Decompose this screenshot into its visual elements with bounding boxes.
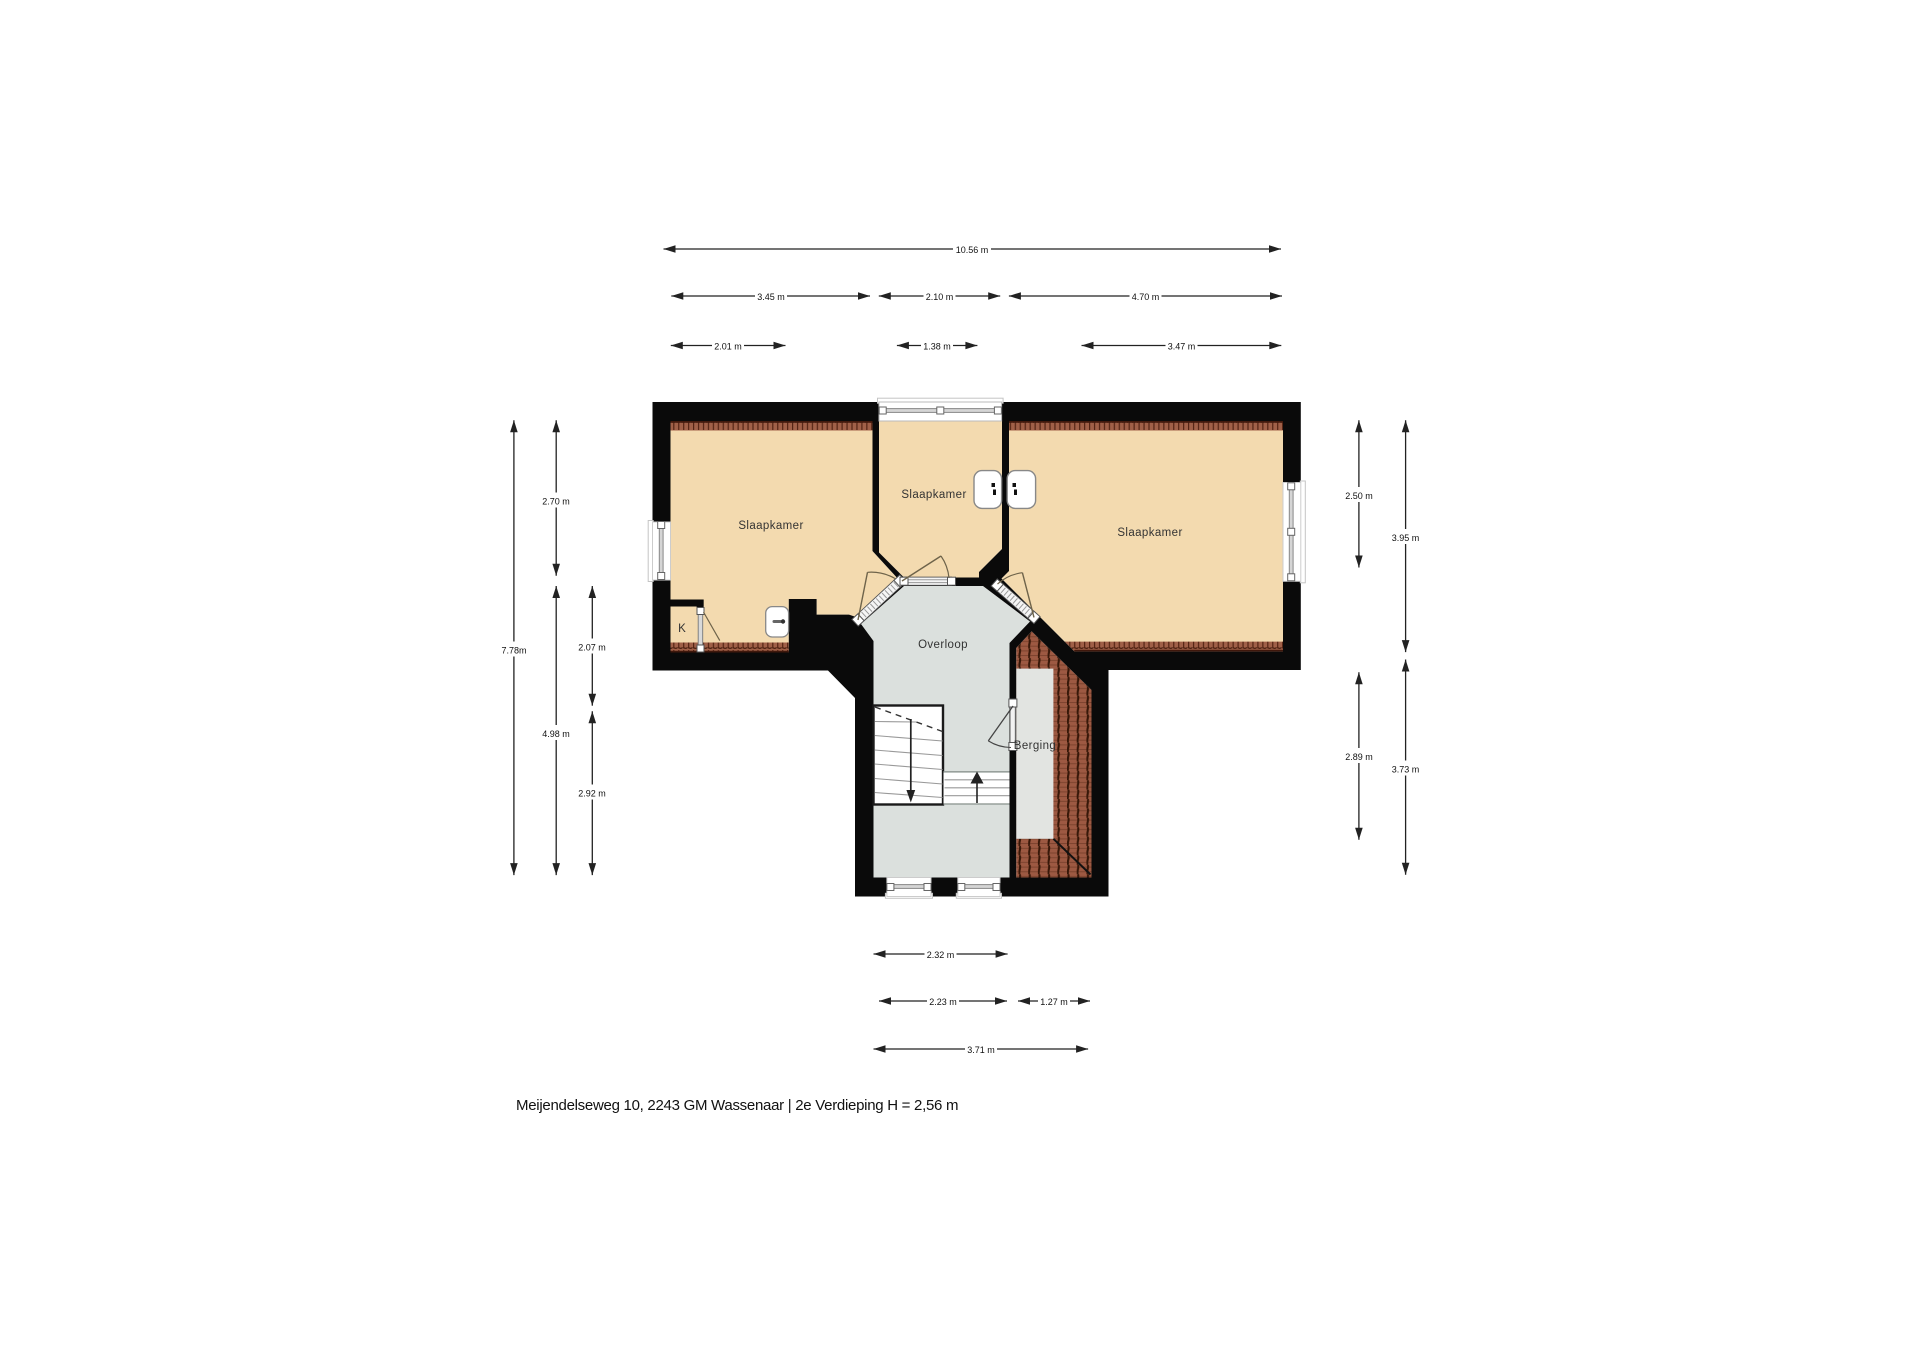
svg-text:2.32 m: 2.32 m bbox=[927, 950, 955, 960]
svg-text:2.50 m: 2.50 m bbox=[1345, 491, 1373, 501]
svg-text:2.89 m: 2.89 m bbox=[1345, 752, 1373, 762]
svg-text:7.78m: 7.78m bbox=[501, 646, 526, 656]
svg-text:1.27 m: 1.27 m bbox=[1040, 997, 1068, 1007]
svg-text:Overloop: Overloop bbox=[918, 639, 968, 651]
svg-text:3.73 m: 3.73 m bbox=[1392, 765, 1420, 775]
svg-text:2.23 m: 2.23 m bbox=[929, 997, 957, 1007]
svg-text:Slaapkamer: Slaapkamer bbox=[901, 489, 966, 501]
svg-text:2.07 m: 2.07 m bbox=[578, 643, 606, 653]
svg-text:Slaapkamer: Slaapkamer bbox=[738, 520, 803, 532]
svg-text:2.70 m: 2.70 m bbox=[542, 497, 570, 507]
svg-text:K: K bbox=[678, 623, 686, 635]
svg-text:3.71 m: 3.71 m bbox=[967, 1045, 995, 1055]
svg-text:2.10 m: 2.10 m bbox=[926, 292, 954, 302]
svg-text:10.56 m: 10.56 m bbox=[956, 245, 989, 255]
svg-text:3.47 m: 3.47 m bbox=[1168, 342, 1196, 352]
svg-text:2.01 m: 2.01 m bbox=[714, 342, 742, 352]
svg-text:4.98 m: 4.98 m bbox=[542, 729, 570, 739]
svg-text:1.38 m: 1.38 m bbox=[923, 342, 951, 352]
svg-text:2.92 m: 2.92 m bbox=[578, 789, 606, 799]
svg-text:Meijendelseweg 10, 2243 GM Was: Meijendelseweg 10, 2243 GM Wassenaar | 2… bbox=[516, 1097, 958, 1114]
svg-text:3.45 m: 3.45 m bbox=[757, 292, 785, 302]
svg-text:4.70 m: 4.70 m bbox=[1132, 292, 1160, 302]
svg-text:Slaapkamer: Slaapkamer bbox=[1117, 527, 1182, 539]
svg-text:3.95 m: 3.95 m bbox=[1392, 533, 1420, 543]
svg-text:Berging: Berging bbox=[1014, 740, 1056, 752]
